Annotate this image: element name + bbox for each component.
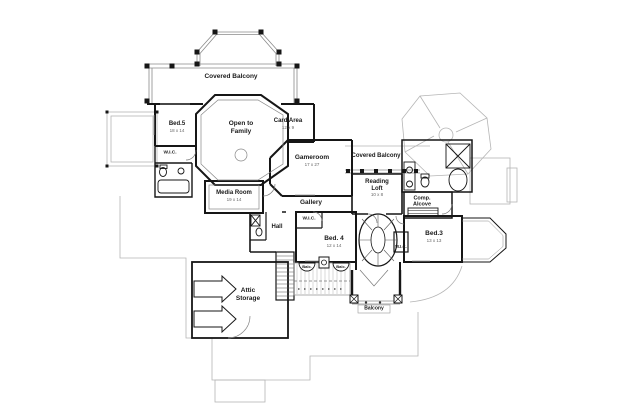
dims-bed5: 18 x 14 [170, 129, 185, 134]
vanity-icon [404, 162, 415, 190]
back-staircase [276, 252, 294, 300]
label-open-to-family-1: Open to [229, 121, 254, 128]
label-gallery: Gallery [300, 200, 322, 207]
label-bed5: Bed.5 [169, 121, 185, 127]
label-wic-bed3: W.I.C. [395, 245, 406, 249]
label-gameroom: Gameroom [295, 155, 329, 162]
floor-plan-drawing [0, 0, 620, 415]
label-attic-storage-2: Storage [236, 296, 260, 303]
label-balc-small-left: Balc. [302, 265, 312, 269]
label-balcony-bottom: Balcony [364, 307, 383, 312]
dims-bed4: 12 x 14 [327, 244, 342, 249]
label-open-to-family-2: Family [231, 129, 252, 136]
label-card-area: Card Area [274, 118, 302, 124]
label-wic-left: W.I.C. [163, 152, 176, 157]
tub-icon [449, 169, 467, 191]
label-reading-loft-1: Reading [365, 179, 389, 185]
label-covered-balcony-right: Covered Balcony [351, 153, 400, 159]
sink-left-icon [178, 168, 184, 174]
lower-roof-hatch [294, 257, 350, 295]
dims-gameroom: 17 x 27 [305, 163, 320, 168]
label-attic-storage-1: Attic [241, 288, 255, 295]
label-bed3: Bed.3 [425, 231, 443, 238]
floor-plan: Covered Balcony Bed.5 18 x 14 Open to Fa… [0, 0, 620, 415]
attic-arrows [194, 276, 236, 332]
label-comp-alcove-2: Alcove [413, 202, 431, 208]
curved-staircase [359, 214, 397, 266]
label-bed4: Bed. 4 [324, 236, 344, 243]
dims-bed3: 13 x 13 [427, 239, 442, 244]
dims-media-room: 19 x 14 [227, 198, 242, 203]
label-media-room: Media Room [216, 190, 252, 196]
label-balc-small-right: Balc. [336, 265, 346, 269]
tub-left-icon [158, 180, 189, 193]
dims-card-area: 12 x 9 [282, 126, 294, 131]
toilet-hall-icon [256, 228, 262, 236]
toilet-icon [421, 177, 429, 187]
desk-icon [408, 208, 438, 216]
dims-reading-loft: 10 x 8 [371, 193, 383, 198]
label-wic-bed4: W.I.C. [302, 218, 315, 223]
label-covered-balcony-top: Covered Balcony [204, 74, 257, 81]
label-hall: Hall [271, 224, 282, 230]
